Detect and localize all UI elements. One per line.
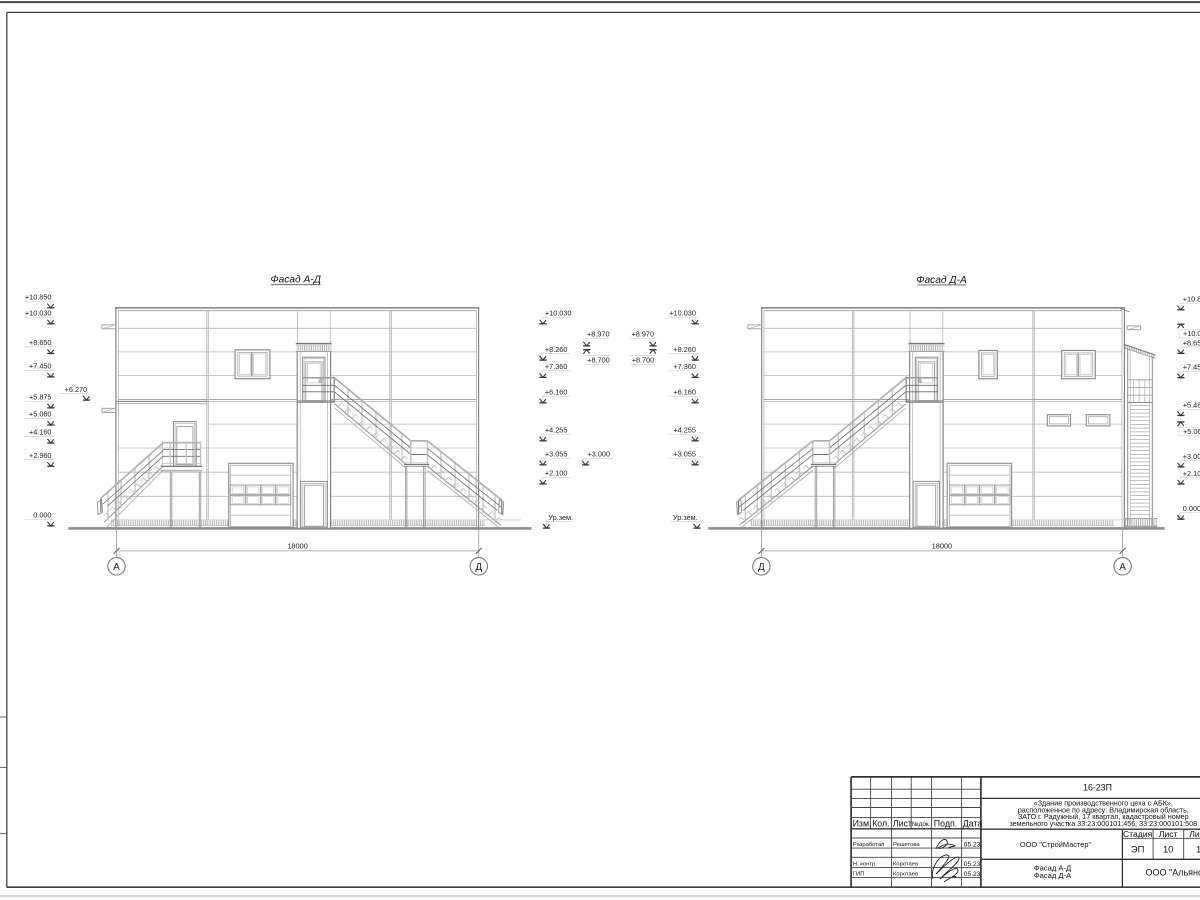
svg-text:+3.000: +3.000	[588, 450, 611, 459]
svg-text:18000: 18000	[287, 541, 308, 550]
svg-text:А: А	[113, 562, 120, 573]
svg-text:ГИП: ГИП	[853, 871, 864, 877]
svg-text:+8.970: +8.970	[587, 330, 610, 339]
svg-text:+5.875: +5.875	[29, 393, 52, 402]
svg-text:№док.: №док.	[912, 821, 931, 828]
svg-text:+8.260: +8.260	[545, 345, 568, 354]
svg-text:Решетова: Решетова	[893, 842, 920, 848]
svg-text:ООО "СтройМастер": ООО "СтройМастер"	[1020, 840, 1092, 849]
svg-text:Д: Д	[758, 562, 765, 573]
svg-text:+2.100: +2.100	[545, 469, 568, 478]
svg-text:А: А	[1119, 562, 1126, 573]
svg-text:земельного участка 33:23:00010: земельного участка 33:23:000101:456, 33:…	[1009, 819, 1197, 828]
svg-text:+7.360: +7.360	[545, 362, 568, 371]
svg-text:+10.030: +10.030	[25, 309, 52, 318]
svg-text:18000: 18000	[932, 541, 953, 550]
svg-text:Коротаев: Коротаев	[893, 871, 918, 877]
svg-text:+4.255: +4.255	[545, 426, 568, 435]
svg-text:+7.360: +7.360	[673, 362, 696, 371]
svg-text:Лист: Лист	[1159, 829, 1178, 839]
svg-text:Лист: Лист	[893, 819, 912, 829]
svg-text:+7.450: +7.450	[29, 362, 52, 371]
svg-text:18: 18	[1196, 843, 1200, 854]
svg-text:Фасад Д-А: Фасад Д-А	[1034, 871, 1072, 880]
svg-text:Стадия: Стадия	[1123, 829, 1153, 839]
svg-text:+4.255: +4.255	[673, 426, 696, 435]
svg-text:+10.850: +10.850	[1183, 295, 1200, 304]
svg-text:+3.055: +3.055	[673, 450, 696, 459]
svg-text:Изм.: Изм.	[853, 819, 872, 829]
svg-text:+6.160: +6.160	[673, 388, 696, 397]
svg-text:05.23: 05.23	[964, 841, 981, 848]
svg-text:+8.650: +8.650	[29, 338, 52, 347]
svg-text:Н. контр.: Н. контр.	[853, 861, 877, 867]
svg-text:Д: Д	[475, 562, 482, 573]
svg-text:+3.055: +3.055	[545, 450, 568, 459]
svg-text:+10.850: +10.850	[25, 293, 52, 302]
svg-text:+2.100: +2.100	[1183, 469, 1200, 478]
svg-text:+7.450: +7.450	[1183, 363, 1200, 372]
svg-text:+5.060: +5.060	[29, 410, 52, 419]
svg-text:Коротаев: Коротаев	[893, 861, 918, 867]
svg-text:0.000: 0.000	[33, 511, 51, 520]
svg-text:16-23П: 16-23П	[1083, 783, 1112, 793]
svg-text:ООО "АльянсПроект": ООО "АльянсПроект"	[1146, 868, 1200, 878]
svg-text:+10.030: +10.030	[669, 309, 696, 318]
svg-text:05.23: 05.23	[964, 871, 981, 878]
svg-text:+6.160: +6.160	[545, 388, 568, 397]
svg-text:+8.700: +8.700	[587, 356, 610, 365]
svg-text:05.23: 05.23	[964, 861, 981, 868]
svg-text:Подп.: Подп.	[934, 819, 957, 829]
svg-text:0.000: 0.000	[1183, 504, 1200, 513]
svg-text:+5.485: +5.485	[1183, 401, 1200, 410]
svg-text:+8.700: +8.700	[632, 356, 655, 365]
svg-text:+10.030: +10.030	[545, 309, 572, 318]
svg-text:Ур.зем.: Ур.зем.	[548, 513, 573, 522]
svg-text:+8.260: +8.260	[673, 345, 696, 354]
svg-text:Кол.: Кол.	[872, 819, 889, 829]
svg-text:+6.270: +6.270	[65, 385, 88, 394]
svg-text:+2.960: +2.960	[29, 451, 52, 460]
svg-text:+3.000: +3.000	[1183, 452, 1200, 461]
svg-text:+4.160: +4.160	[29, 428, 52, 437]
svg-text:+8.650: +8.650	[1183, 338, 1200, 347]
svg-text:+8.970: +8.970	[632, 330, 655, 339]
svg-text:Ур.зем.: Ур.зем.	[673, 513, 698, 522]
svg-text:+10.030: +10.030	[1183, 329, 1200, 338]
svg-text:Разработал: Разработал	[853, 842, 885, 848]
svg-text:ЭП: ЭП	[1131, 843, 1144, 854]
svg-text:10: 10	[1163, 843, 1173, 854]
svg-text:+5.060: +5.060	[1183, 427, 1200, 436]
svg-text:Фасад А-Д: Фасад А-Д	[271, 275, 321, 286]
svg-text:Лист: Лист	[1189, 829, 1200, 839]
svg-text:Дата: Дата	[963, 819, 983, 829]
svg-text:Фасад Д-А: Фасад Д-А	[916, 275, 967, 286]
